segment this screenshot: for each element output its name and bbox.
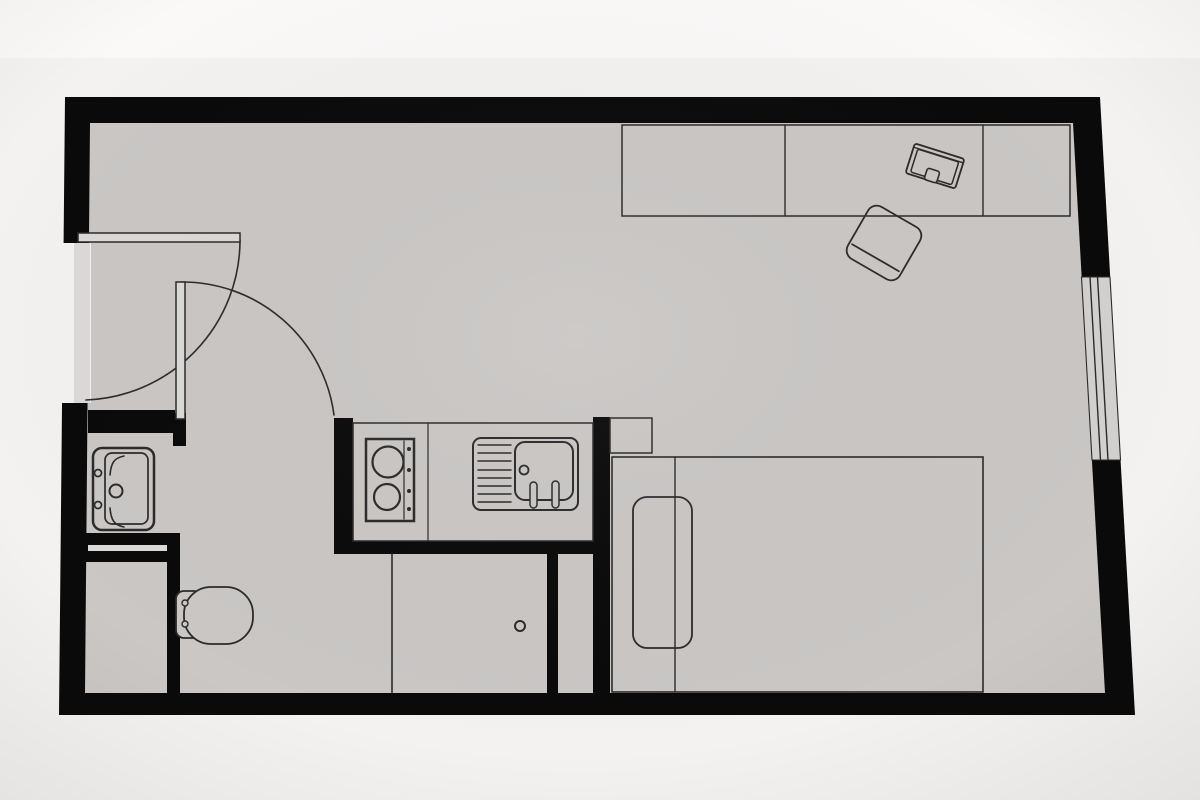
- floor-plan-page: [0, 0, 1200, 800]
- vignette-overlay: [0, 0, 1200, 800]
- floor-plan-drawing: [0, 0, 1200, 800]
